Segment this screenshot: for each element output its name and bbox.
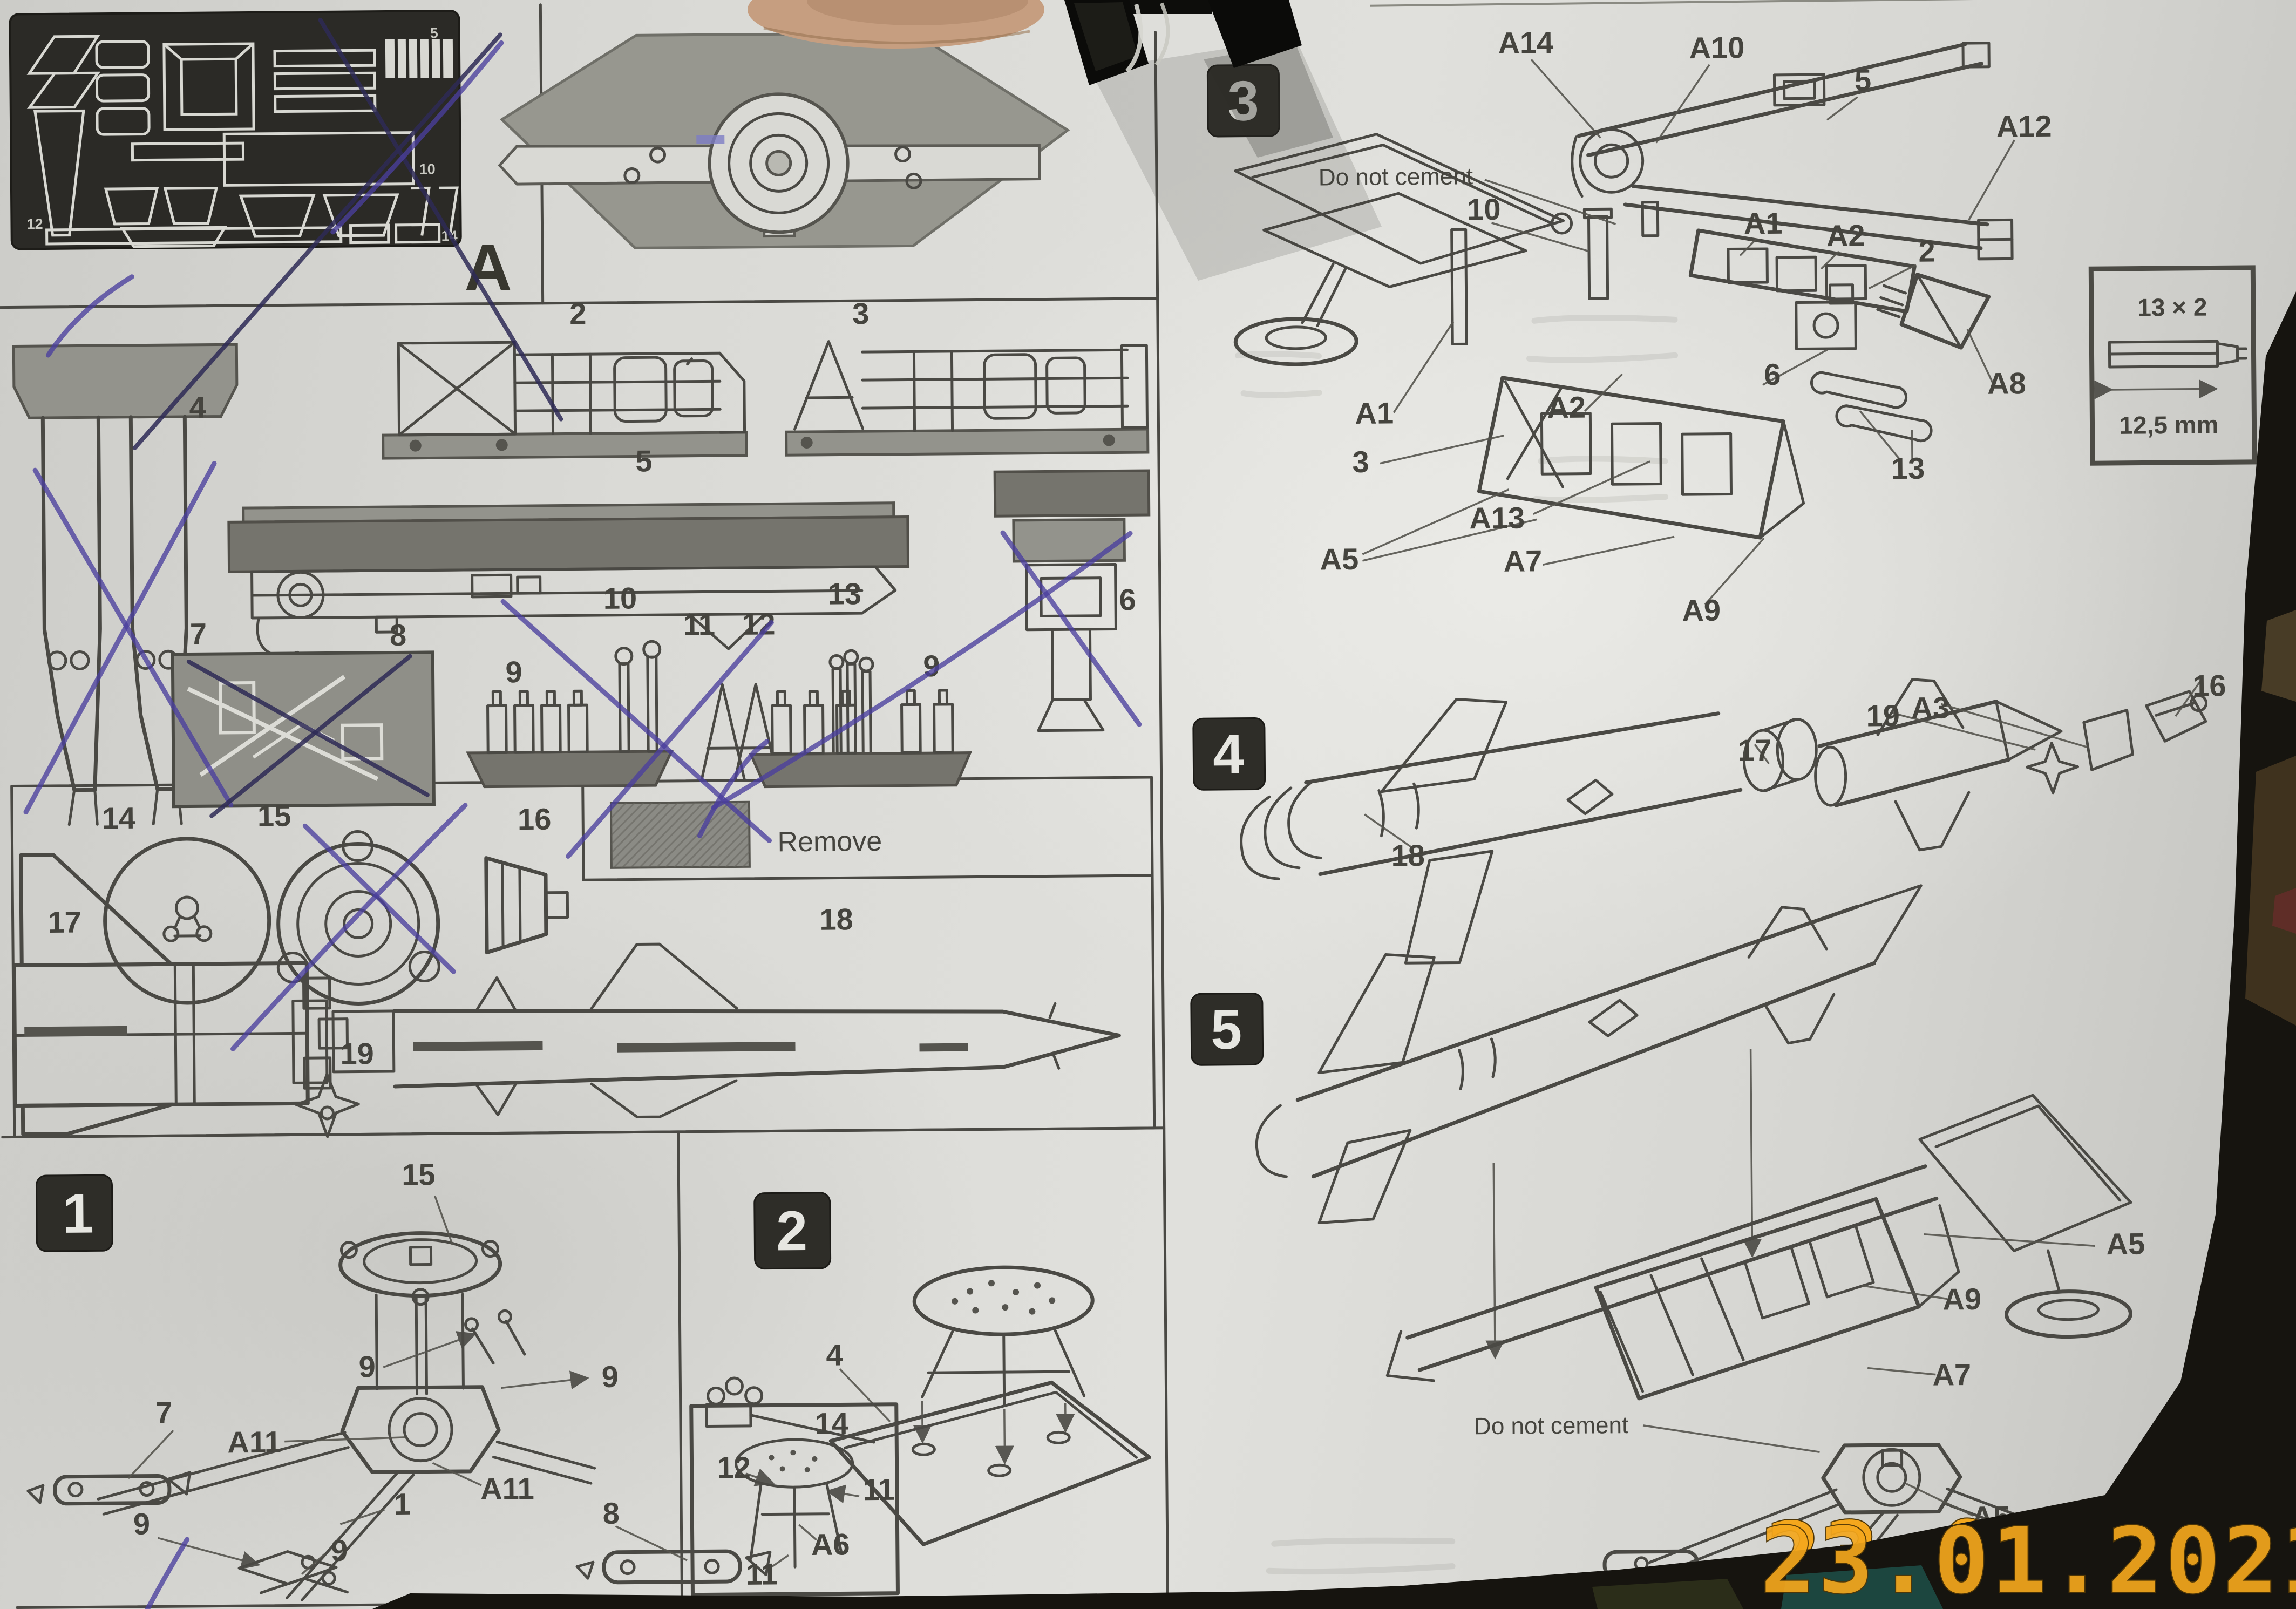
fret-number: 5 [430,25,438,41]
table-background [372,291,2296,1609]
step4-callout: 16 [2192,668,2226,702]
step2-callout: 12 [717,1450,751,1484]
sheet-art: 5 10 12 14 A [0,0,2296,1609]
step3-callout: A5 [1320,542,1358,576]
step4-callout: A3 [1911,690,1950,725]
part-label-4: 4 [189,390,206,424]
part-label-7: 7 [190,617,207,651]
step-4: 4 [1193,668,2228,965]
do-not-cement-note: Do not cement [1474,1412,1629,1440]
step1-callout: A11 [227,1425,281,1459]
step3-callout: 6 [1764,357,1781,391]
small-parts-trays-diagram [467,639,970,789]
step5-callout: A5 [2106,1227,2145,1261]
measure-length: 12,5 mm [2119,410,2219,439]
step3-callout: A2 [1547,390,1586,425]
part-18-missile-side-view [293,940,1119,1119]
step3-callout: A1 [1355,396,1394,430]
part-label-9a: 9 [505,655,522,689]
step3-callout: A9 [1682,593,1721,628]
step-1: 1 [25,1155,770,1603]
part-label-10: 10 [603,581,637,615]
step1-callout: 9 [358,1349,376,1383]
photo-of-instruction-sheet: 5 10 12 14 A [0,0,2296,1609]
step-3: 3 [1207,22,2056,631]
step3-callout: 2 [1918,234,1935,268]
part-label-19: 19 [340,1036,374,1070]
part-5-rail-diagram [229,503,909,657]
step2-callout: 4 [826,1338,843,1372]
step5-callout: A7 [1932,1357,1971,1392]
step2-callout: 11 [745,1557,778,1591]
measure-count: 13 × 2 [2137,293,2207,322]
part-label-5: 5 [635,444,653,478]
step3-callout: 10 [1467,192,1501,226]
part-label-6: 6 [1119,582,1136,616]
step-4-badge: 4 [1213,723,1245,786]
part-label-18: 18 [819,902,853,936]
part-label-15: 15 [257,798,291,832]
step-5-badge: 5 [1211,999,1242,1061]
faint-pencil-ghosts [1238,317,1684,1572]
step-5: 5 [1190,884,2193,1601]
step3-callout: A10 [1689,30,1744,65]
remove-label: Remove [777,826,882,858]
part-3-diagram [785,339,1148,455]
step4-callout: 17 [1738,733,1772,767]
step5-callout: A9 [1942,1282,1981,1316]
step3-callout: A2 [1826,219,1865,253]
fret-number: 10 [419,161,436,177]
step1-callout: 9 [133,1507,151,1541]
step-2: 2 [690,1190,1151,1595]
measurement-box: 13 × 2 12,5 mm [2091,268,2254,463]
step3-callout: 3 [1352,445,1369,479]
step1-callout: 7 [155,1395,173,1429]
step4-callout: 19 [1866,698,1900,732]
binder-clip-shadow [1090,38,1382,281]
step1-callout: 9 [331,1533,348,1567]
step3-callout: A8 [1987,366,2026,400]
part-label-13: 13 [828,576,862,610]
remove-legend: Remove [611,801,882,868]
photo-etch-fret-panel: 5 10 12 14 [10,11,460,249]
date-stamp-overlay: 23.01.2021 [1761,1508,2296,1609]
step3-callout: 13 [1891,451,1925,485]
step3-callout: A14 [1498,25,1553,60]
part-label-16: 16 [518,802,552,836]
part-label-2: 2 [569,296,587,330]
step3-callout: 5 [1855,63,1872,97]
step2-callout: 11 [862,1472,895,1506]
fret-number: 12 [26,216,43,232]
step2-callout: 14 [815,1406,849,1440]
part-label-14: 14 [102,801,136,835]
part-label-3: 3 [852,296,870,330]
step1-callout: 8 [602,1496,620,1530]
step1-callout: 9 [601,1360,619,1394]
step1-callout: 15 [402,1157,436,1191]
step4-callout: 18 [1391,838,1425,872]
step1-callout: 1 [393,1487,411,1521]
part-17-diagram [13,853,348,1135]
step3-callout: A1 [1744,206,1783,241]
part-label-17: 17 [47,905,81,939]
step3-callout: A13 [1469,501,1525,535]
step3-callout: A12 [1996,109,2052,144]
step3-callout: A7 [1503,544,1542,578]
step-2-badge: 2 [776,1200,808,1262]
step1-callout: A11 [480,1471,534,1506]
step-1-badge: 1 [62,1182,94,1245]
part-16-diagram [486,857,568,952]
part-14-diagram [104,838,269,1003]
step-4-missile-diagram [1240,677,2208,965]
part-label-11: 11 [683,607,716,641]
part-label-8: 8 [390,618,407,652]
step2-callout: A6 [811,1527,850,1562]
